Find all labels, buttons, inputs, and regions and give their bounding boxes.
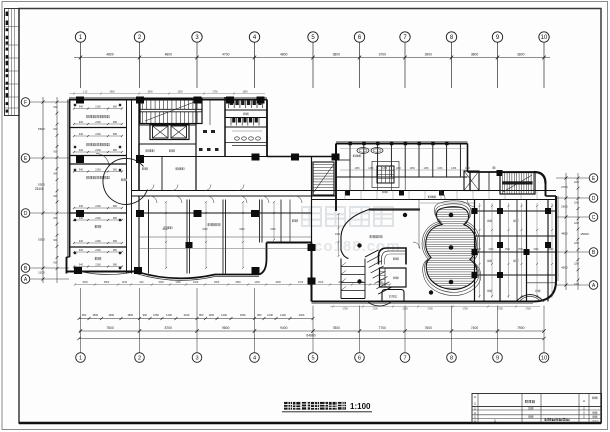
svg-text:10: 10 [541,356,547,362]
svg-text:4700: 4700 [222,52,230,56]
svg-text:1800: 1800 [127,313,133,317]
svg-text:9: 9 [496,356,499,362]
svg-text:2160: 2160 [95,121,101,124]
svg-text:1450: 1450 [423,168,429,170]
svg-text:900: 900 [82,313,87,317]
svg-text:1200: 1200 [574,202,580,204]
svg-text:940: 940 [79,205,84,208]
svg-text:1300: 1300 [254,281,260,284]
svg-text:10: 10 [541,35,548,41]
svg-text:5500: 5500 [38,183,45,187]
svg-text:940: 940 [79,249,84,252]
svg-text:1700: 1700 [372,308,378,311]
svg-text:980: 980 [113,249,118,252]
svg-text:1900: 1900 [214,281,220,284]
svg-text:7: 7 [403,356,406,362]
svg-text:F: F [24,100,27,106]
svg-text:940: 940 [79,133,84,136]
svg-text:900: 900 [53,195,58,198]
svg-text:1450: 1450 [354,168,360,170]
svg-text:2006.8: 2006.8 [592,421,599,423]
svg-text:1450: 1450 [410,168,416,170]
svg-text:4500: 4500 [561,266,568,270]
svg-text:2700: 2700 [212,92,218,94]
svg-text:3800: 3800 [471,52,479,56]
svg-text:8: 8 [450,356,453,362]
svg-text:950: 950 [257,313,262,317]
svg-text:1400: 1400 [280,313,286,317]
svg-text:9400: 9400 [280,326,288,330]
svg-text:3: 3 [195,356,198,362]
svg-text:980: 980 [113,240,118,243]
svg-text:900: 900 [53,128,58,131]
svg-text:2160: 2160 [95,249,101,252]
svg-text:7900: 7900 [517,326,525,330]
svg-text:1700: 1700 [497,308,503,311]
svg-text:1560: 1560 [235,281,241,284]
svg-text:7600: 7600 [425,326,433,330]
svg-text:3300: 3300 [239,228,245,231]
svg-text:900: 900 [143,313,148,317]
svg-text:15000: 15000 [580,232,589,236]
svg-text:5600: 5600 [38,127,45,131]
svg-text:1:100: 1:100 [350,402,371,411]
svg-text:980: 980 [113,149,118,152]
svg-text:2160: 2160 [95,264,101,267]
svg-text:2700: 2700 [561,185,568,189]
svg-text:940: 940 [79,149,84,152]
svg-text:2160: 2160 [95,240,101,243]
svg-text:1250: 1250 [153,313,159,317]
svg-text:1700: 1700 [462,308,468,311]
svg-text:900: 900 [53,173,58,176]
svg-text:1900: 1900 [108,313,114,317]
svg-text:co188.com: co188.com [314,238,401,255]
svg-text:1500: 1500 [548,249,554,251]
svg-text:1400: 1400 [193,281,199,284]
svg-text:4800: 4800 [280,52,288,56]
svg-text:1900: 1900 [275,281,281,284]
svg-text:1450: 1450 [465,168,471,170]
svg-text:940: 940 [79,264,84,267]
svg-text:1.15: 1.15 [83,92,88,94]
svg-text:1700: 1700 [427,308,433,311]
svg-text:C: C [592,215,596,221]
svg-text:1450: 1450 [382,168,388,170]
svg-text:800: 800 [199,313,204,317]
svg-text:900: 900 [53,217,58,220]
svg-text:3800: 3800 [517,52,525,56]
svg-text:1150: 1150 [122,281,128,284]
svg-text:1150: 1150 [208,313,214,317]
svg-text:980: 980 [113,264,118,267]
svg-text:3300: 3300 [202,228,208,231]
svg-text:3000: 3000 [147,92,153,94]
svg-text:1200: 1200 [267,313,273,317]
svg-text:900: 900 [53,150,58,153]
svg-text:980: 980 [113,217,118,220]
svg-text:1700: 1700 [342,308,348,311]
svg-text:D: D [592,196,596,202]
svg-text:2160: 2160 [95,205,101,208]
svg-text:1200: 1200 [574,223,580,225]
svg-text:3700: 3700 [379,52,387,56]
svg-text:1500: 1500 [158,281,164,284]
svg-text:940: 940 [79,217,84,220]
svg-text:1400: 1400 [221,313,227,317]
svg-text:1700: 1700 [402,308,408,311]
svg-text:2400: 2400 [335,234,341,236]
svg-text:940: 940 [79,121,84,124]
svg-text:1200: 1200 [574,284,580,286]
svg-text:1450: 1450 [451,168,457,170]
svg-text:1500: 1500 [82,281,88,284]
svg-text:7500: 7500 [106,326,114,330]
svg-text:900: 900 [53,106,58,109]
svg-text:940: 940 [79,169,84,172]
svg-text:900: 900 [53,239,58,242]
svg-text:8700: 8700 [165,326,173,330]
svg-text:1700: 1700 [525,308,531,311]
svg-text:4800: 4800 [561,232,568,236]
svg-text:1500: 1500 [318,281,324,284]
svg-text:980: 980 [113,121,118,124]
svg-text:2100: 2100 [184,313,190,317]
svg-text:1200: 1200 [574,264,580,266]
svg-text:1200: 1200 [574,182,580,184]
svg-text:980: 980 [113,169,118,172]
svg-text:2300: 2300 [240,313,246,317]
svg-text:1800: 1800 [242,92,248,94]
svg-text:1400: 1400 [166,313,172,317]
svg-text:D: D [24,211,28,217]
svg-text:9800: 9800 [222,326,230,330]
svg-text:1450: 1450 [437,168,443,170]
svg-text:3800: 3800 [104,281,110,284]
svg-text:980: 980 [113,133,118,136]
svg-text:1500: 1500 [505,249,511,251]
svg-text:2160: 2160 [95,169,101,172]
svg-text:2160: 2160 [95,217,101,220]
svg-text:1700: 1700 [298,281,304,284]
svg-text:7800: 7800 [333,326,341,330]
svg-text:3900: 3900 [109,92,115,94]
svg-text:5: 5 [311,356,314,362]
svg-text:1560: 1560 [92,313,98,317]
svg-text:940: 940 [79,240,84,243]
svg-text:4: 4 [253,356,256,362]
svg-text:1500: 1500 [533,249,539,251]
svg-text:3900: 3900 [425,52,433,56]
svg-text:2300: 2300 [299,313,305,317]
svg-text:1500: 1500 [518,249,524,251]
svg-text:980: 980 [113,205,118,208]
svg-text:1250: 1250 [175,281,181,284]
svg-text:1: 1 [79,356,82,362]
svg-text:2160: 2160 [95,106,101,109]
svg-text:1450: 1450 [368,168,374,170]
svg-text:2600: 2600 [561,205,568,209]
svg-text:23400: 23400 [35,187,44,191]
svg-text:7700: 7700 [379,326,387,330]
svg-text:2160: 2160 [95,133,101,136]
svg-text:4800: 4800 [165,52,173,56]
svg-text:3800: 3800 [333,52,341,56]
svg-text:900: 900 [53,261,58,264]
svg-text:1500: 1500 [177,92,183,94]
svg-text:7400: 7400 [471,326,479,330]
svg-text:940: 940 [140,281,145,284]
svg-text:940: 940 [79,106,84,109]
svg-text:2: 2 [138,356,141,362]
svg-text:64800: 64800 [306,334,315,338]
svg-text:3300: 3300 [270,228,276,231]
svg-text:1200: 1200 [574,243,580,245]
svg-text:4800: 4800 [106,52,114,56]
svg-text:1500: 1500 [488,249,494,251]
svg-text:1100: 1100 [38,271,45,275]
svg-text:2160: 2160 [95,149,101,152]
svg-text:5500: 5500 [38,238,45,242]
svg-text:6: 6 [358,356,361,362]
svg-text:980: 980 [113,106,118,109]
